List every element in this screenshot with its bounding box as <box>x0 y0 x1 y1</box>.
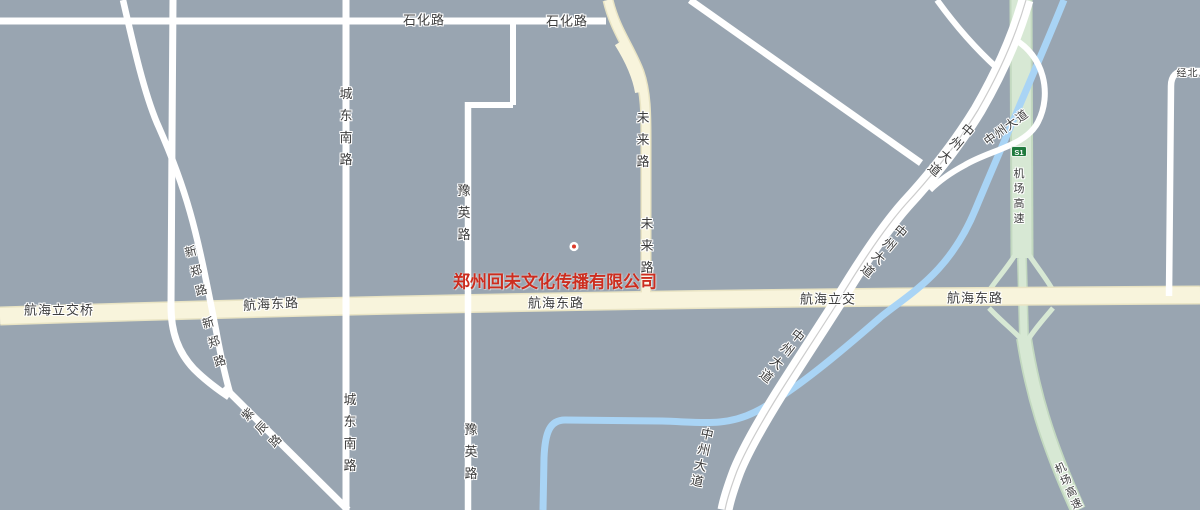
road-jingbei <box>1169 71 1200 296</box>
label-char: 路 <box>636 151 649 173</box>
ramp-white-northwest <box>937 0 997 68</box>
label-company-name[interactable]: 郑州回未文化传播有限公司 <box>453 268 657 293</box>
s1-highway-badge: S1 <box>1011 146 1027 157</box>
label-yuying-lu-1: 豫英路 <box>457 180 470 246</box>
label-char: 南 <box>339 127 352 149</box>
label-char: 路 <box>457 224 470 246</box>
label-chengdongnan-lu-2: 城东南路 <box>343 389 356 477</box>
label-char: 未 <box>636 107 649 129</box>
label-char: 英 <box>457 202 470 224</box>
label-char: 未 <box>640 213 653 235</box>
label-char: 来 <box>640 235 653 257</box>
label-char: 南 <box>343 433 356 455</box>
label-char: 英 <box>464 441 477 463</box>
label-hanghai-lijiao: 航海立交 <box>800 289 856 308</box>
label-char: 速 <box>1014 212 1025 227</box>
label-hanghai-lijiaoqiao: 航海立交桥 <box>24 300 94 319</box>
label-hanghai-donglu-3: 航海东路 <box>947 288 1003 307</box>
map-canvas[interactable]: 石化路石化路城东南路城东南路豫英路豫英路未来路未来路新郑路新郑路紫辰路航海立交桥… <box>0 0 1200 510</box>
label-char: 场 <box>1014 182 1025 197</box>
location-pin-icon[interactable] <box>563 236 585 264</box>
label-shihua-lu-2: 石化路 <box>546 11 588 30</box>
road-zhongzhou-branch <box>690 0 921 163</box>
label-char: 城 <box>339 83 352 105</box>
ramp-green-lower-left <box>989 308 1023 341</box>
label-char: 东 <box>339 105 352 127</box>
label-jingbei-road: 经北二 <box>1177 65 1200 80</box>
label-char: 路 <box>343 455 356 477</box>
label-char: 东 <box>343 411 356 433</box>
label-chengdongnan-lu-1: 城东南路 <box>339 83 352 171</box>
label-weilai-lu-1: 未来路 <box>636 107 649 173</box>
label-char: 高 <box>1014 197 1025 212</box>
label-char: 机 <box>1014 167 1025 182</box>
roads-layer <box>0 0 1200 510</box>
label-char: 城 <box>343 389 356 411</box>
ramp-green-lower-right <box>1026 308 1053 343</box>
label-hanghai-donglu-1: 航海东路 <box>243 292 300 314</box>
label-shihua-lu-1: 石化路 <box>403 10 445 29</box>
pin-dot <box>572 245 576 249</box>
label-char: 豫 <box>464 419 477 441</box>
label-jichang-gaosu-1: 机场高速 <box>1014 167 1025 227</box>
label-char: 来 <box>636 129 649 151</box>
label-char: 豫 <box>457 180 470 202</box>
label-hanghai-donglu-2: 航海东路 <box>528 293 584 312</box>
label-yuying-lu-2: 豫英路 <box>464 419 477 485</box>
label-char: 路 <box>339 149 352 171</box>
label-char: 路 <box>464 463 477 485</box>
